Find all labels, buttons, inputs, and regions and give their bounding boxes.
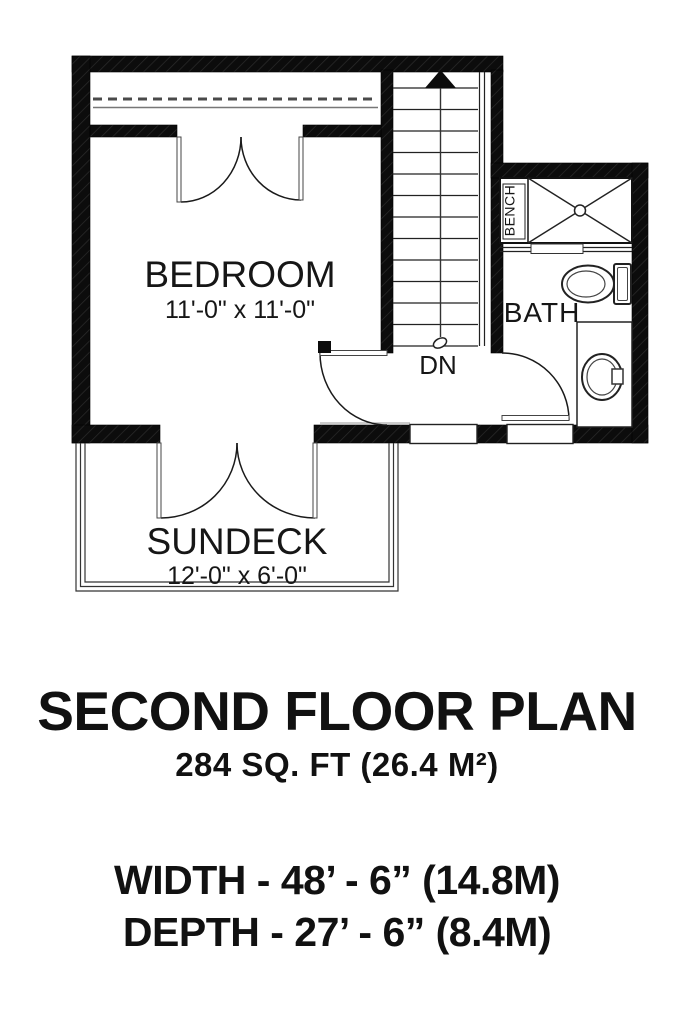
- toilet-bowl-inner: [567, 271, 605, 297]
- door-leaf: [177, 137, 181, 202]
- bedroom-door: [318, 341, 387, 425]
- floor-plan-drawing: DN BENCH: [0, 0, 674, 630]
- bedroom-room-label: BEDROOM: [144, 254, 335, 295]
- door-swing-arc: [161, 443, 237, 518]
- toilet-tank-inner: [618, 268, 628, 301]
- door-leaf-end-cap: [318, 341, 331, 353]
- door-swing-arc: [502, 353, 569, 420]
- wall-closet-right: [303, 125, 381, 137]
- stairs-down-label: DN: [419, 350, 457, 380]
- door-swing-arc: [181, 137, 241, 202]
- plan-dimensions-block: WIDTH - 48’ - 6” (14.8M) DEPTH - 27’ - 6…: [0, 854, 674, 958]
- wall-bath-north: [491, 163, 648, 178]
- plan-area-text: 284 SQ. FT (26.4 M²): [0, 748, 674, 781]
- window: [410, 425, 477, 444]
- sink-faucet: [612, 369, 623, 384]
- shower-drain: [575, 205, 586, 216]
- wall-top: [72, 56, 503, 72]
- floor-plan-page: DN BENCH: [0, 0, 674, 1014]
- wall-bath-east: [632, 163, 648, 443]
- sundeck-room-label: SUNDECK: [147, 521, 328, 562]
- plan-depth-text: DEPTH - 27’ - 6” (8.4M): [0, 906, 674, 958]
- wall-stair-left: [381, 70, 393, 353]
- vanity: [577, 322, 632, 427]
- closet-double-door: [177, 137, 303, 202]
- wall-south-segment-b: [314, 425, 410, 443]
- door-swing-arc: [320, 353, 387, 425]
- closet: [93, 99, 378, 202]
- door-leaf: [502, 416, 569, 421]
- stairs-up-arrow: [425, 70, 456, 88]
- door-swing-arc: [241, 137, 301, 200]
- window: [507, 425, 573, 444]
- door-leaf: [157, 443, 161, 518]
- wall-south-segment-c: [477, 425, 507, 443]
- door-swing-arc: [237, 443, 315, 518]
- bedroom: BEDROOM 11'-0" x 11'-0": [144, 254, 335, 324]
- plan-width-text: WIDTH - 48’ - 6” (14.8M): [0, 854, 674, 906]
- plan-title: SECOND FLOOR PLAN: [0, 684, 674, 739]
- wall-left: [72, 56, 90, 443]
- sundeck-room-dims: 12'-0" x 6'-0": [167, 562, 307, 590]
- staircase: DN: [393, 70, 485, 380]
- sundeck: SUNDECK 12'-0" x 6'-0": [76, 443, 398, 591]
- shower-threshold: [531, 244, 583, 254]
- stairs-line-end-marker: [432, 336, 449, 351]
- wall-south-segment-a: [72, 425, 160, 443]
- bath-door: [502, 353, 569, 421]
- shower: BENCH: [500, 178, 632, 254]
- bathroom: BENCH BATH: [500, 178, 632, 427]
- bench-label: BENCH: [502, 185, 518, 237]
- bath-room-label: BATH: [504, 297, 581, 328]
- door-leaf: [313, 443, 317, 518]
- bedroom-room-dims: 11'-0" x 11'-0": [165, 296, 315, 324]
- wall-closet-left: [90, 125, 177, 137]
- sundeck-double-door: [157, 443, 317, 518]
- door-leaf: [299, 137, 303, 200]
